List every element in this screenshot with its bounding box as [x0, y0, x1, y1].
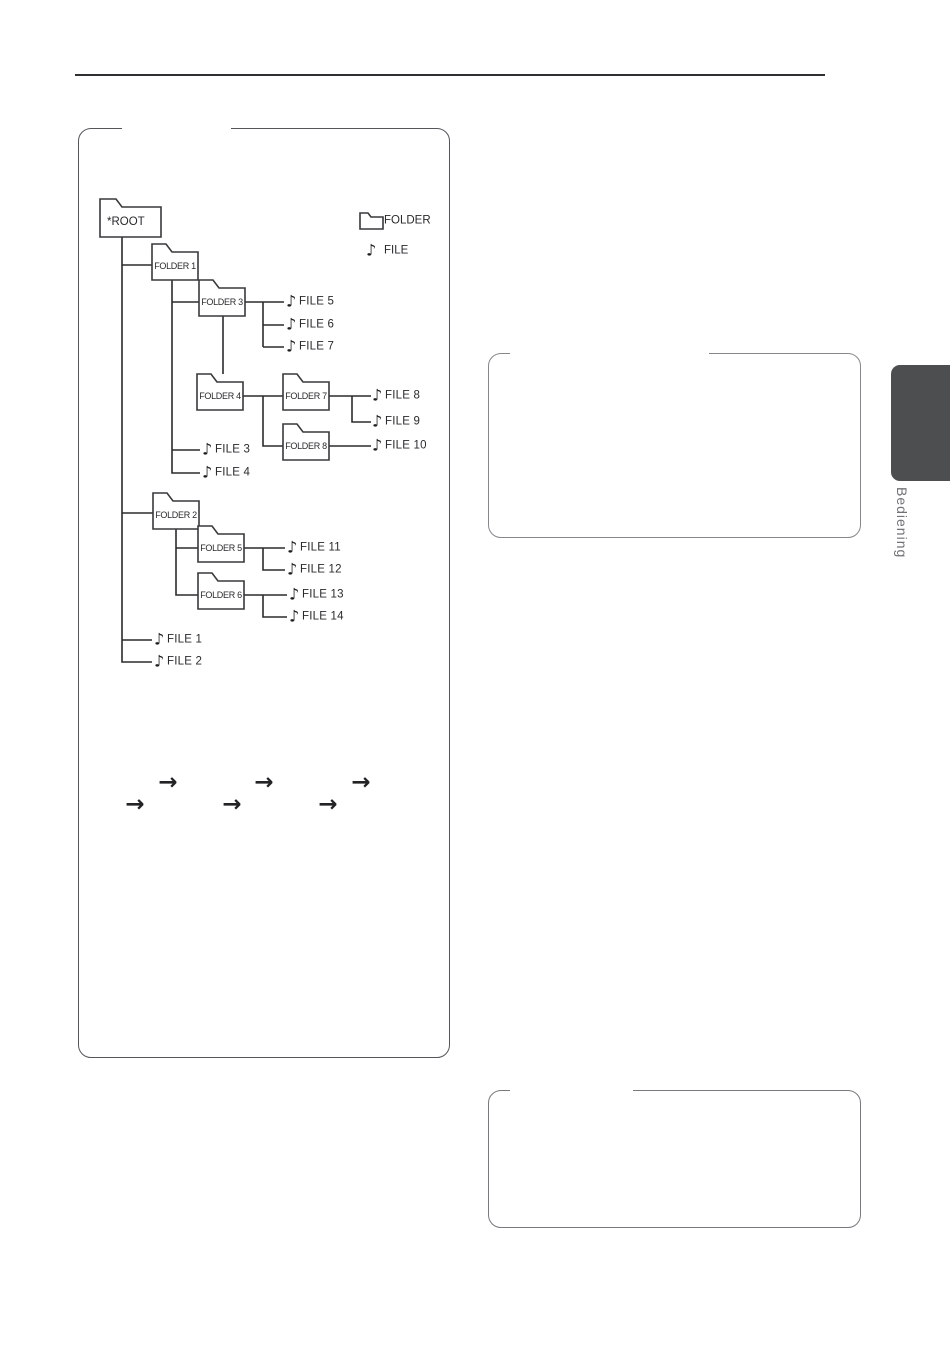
file-node-label: FILE 2: [167, 656, 202, 668]
music-note-icon: ♪: [372, 387, 382, 403]
music-note-icon: ♪: [202, 441, 212, 457]
folder-node-label: FOLDER 1: [153, 252, 197, 280]
file-node-label: FILE 6: [299, 319, 334, 331]
legend-folder-icon: [360, 213, 383, 229]
tree-connector: [172, 280, 200, 473]
music-note-icon: ♪: [154, 631, 164, 647]
legend-music-note-icon: ♪: [366, 242, 376, 258]
tree-connectors-layer: [0, 0, 950, 1348]
tree-connector: [176, 529, 198, 595]
file-node-label: FILE 3: [215, 444, 250, 456]
folder-node-label: FOLDER 6: [199, 581, 243, 609]
music-note-icon: ♪: [289, 608, 299, 624]
tree-connector: [263, 396, 283, 446]
file-node-label: FILE 13: [302, 589, 344, 601]
music-note-icon: ♪: [372, 437, 382, 453]
music-note-icon: ♪: [289, 586, 299, 602]
file-node-label: FILE 5: [299, 296, 334, 308]
file-node-label: FILE 4: [215, 467, 250, 479]
legend-folder-label: FOLDER: [384, 215, 431, 227]
tree-connector: [122, 237, 152, 662]
right-arrow-icon: →: [125, 794, 144, 817]
folder-node-label: FOLDER 7: [284, 382, 328, 410]
folder-tree-diagram: *ROOTFOLDER 1FOLDER 3FOLDER 4FOLDER 7FOL…: [0, 0, 950, 1348]
folder-node-label: FOLDER 5: [199, 534, 243, 562]
file-node-label: FILE 7: [299, 341, 334, 353]
right-arrow-icon: →: [158, 772, 177, 795]
file-node-label: FILE 10: [385, 440, 427, 452]
music-note-icon: ♪: [372, 413, 382, 429]
file-node-label: FILE 12: [300, 564, 342, 576]
root-folder-label: *ROOT: [100, 207, 168, 237]
manual-page: Bediening *ROOTFOLDER 1FOLDER 3FOLDER 4F…: [0, 0, 950, 1348]
file-node-label: FILE 14: [302, 611, 344, 623]
file-node-label: FILE 1: [167, 634, 202, 646]
right-arrow-icon: →: [222, 794, 241, 817]
legend-file-label: FILE: [384, 245, 408, 257]
tree-connector: [263, 595, 287, 617]
tree-connector: [263, 548, 285, 570]
music-note-icon: ♪: [286, 293, 296, 309]
music-note-icon: ♪: [287, 539, 297, 555]
music-note-icon: ♪: [154, 653, 164, 669]
folder-node-label: FOLDER 3: [200, 288, 244, 316]
folder-node-label: FOLDER 2: [154, 501, 198, 529]
music-note-icon: ♪: [287, 561, 297, 577]
tree-connector: [352, 396, 371, 422]
music-note-icon: ♪: [202, 464, 212, 480]
music-note-icon: ♪: [286, 316, 296, 332]
right-arrow-icon: →: [351, 772, 370, 795]
folder-node-label: FOLDER 8: [284, 432, 328, 460]
music-note-icon: ♪: [286, 338, 296, 354]
right-arrow-icon: →: [254, 772, 273, 795]
right-arrow-icon: →: [318, 794, 337, 817]
file-node-label: FILE 8: [385, 390, 420, 402]
file-node-label: FILE 11: [300, 542, 341, 554]
folder-node-label: FOLDER 4: [198, 382, 242, 410]
file-node-label: FILE 9: [385, 416, 420, 428]
